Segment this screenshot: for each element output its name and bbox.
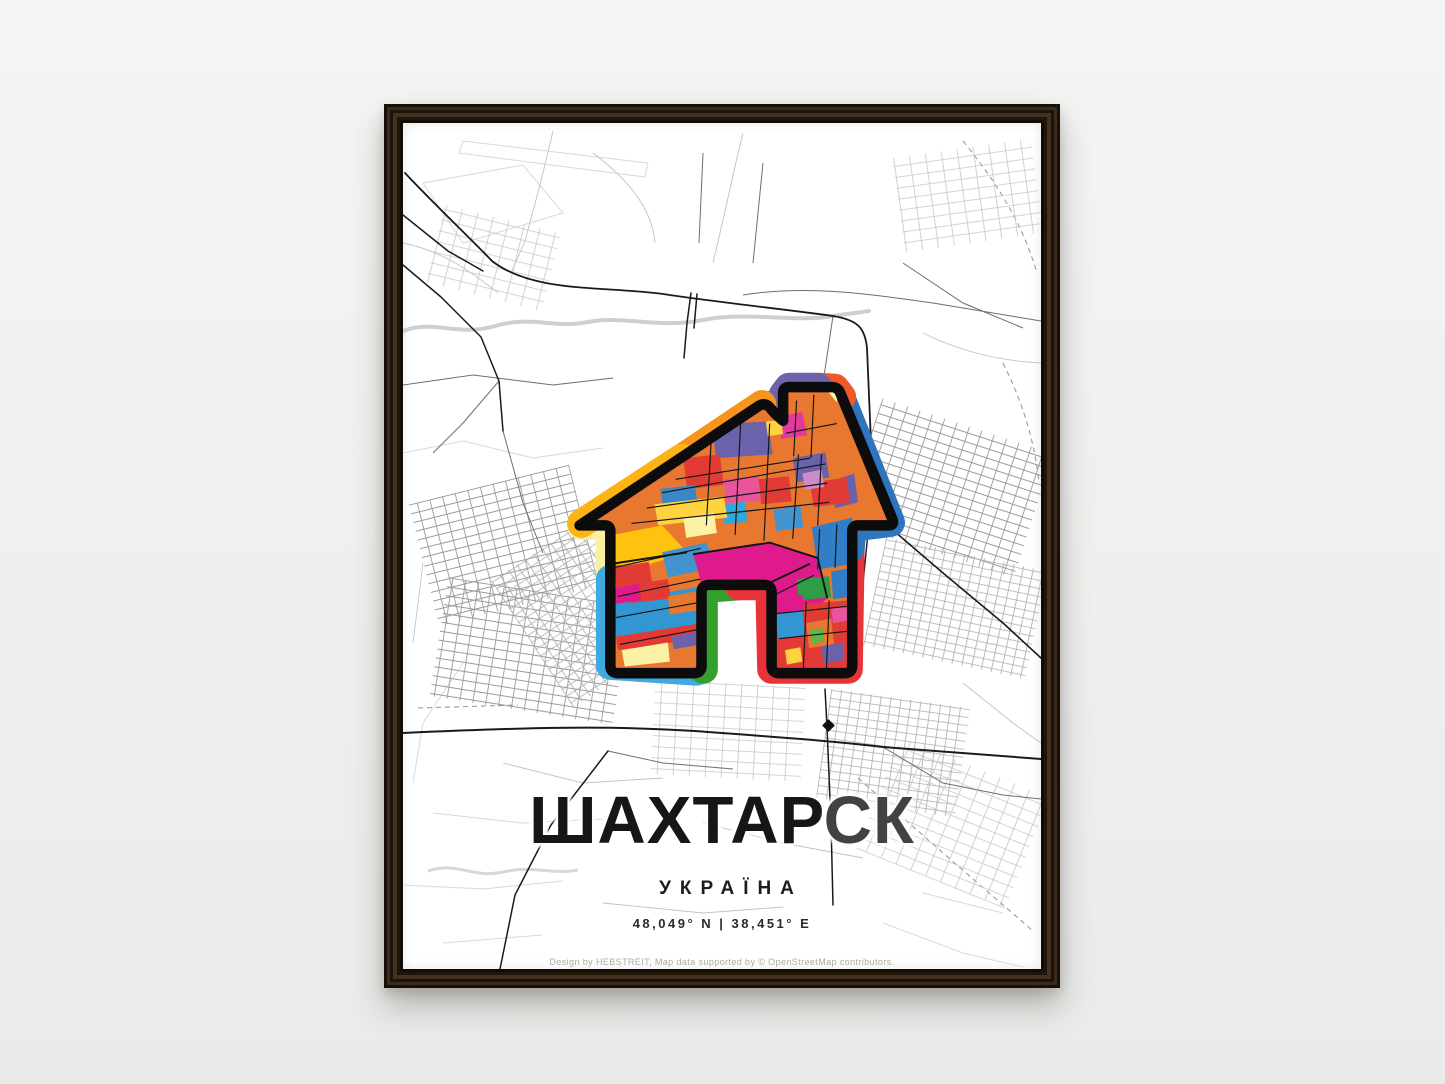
credit-line: Design by HEBSTREIT, Map data supported …	[403, 957, 1041, 967]
page-title: ШАХТАРСК	[403, 787, 1041, 854]
coordinates-label: 48,049° N | 38,451° E	[403, 916, 1041, 931]
country-subtitle: УКРАЇНА	[403, 878, 1041, 900]
wall: ШАХТАРСК УКРАЇНА 48,049° N | 38,451° E D…	[0, 0, 1445, 1084]
city-map-poster: ШАХТАРСК УКРАЇНА 48,049° N | 38,451° E D…	[403, 123, 1041, 969]
house-map-icon	[570, 366, 916, 683]
title-primary: ШАХТАР	[529, 783, 824, 858]
poster-frame: ШАХТАРСК УКРАЇНА 48,049° N | 38,451° E D…	[384, 104, 1060, 988]
title-secondary: СК	[824, 783, 915, 858]
